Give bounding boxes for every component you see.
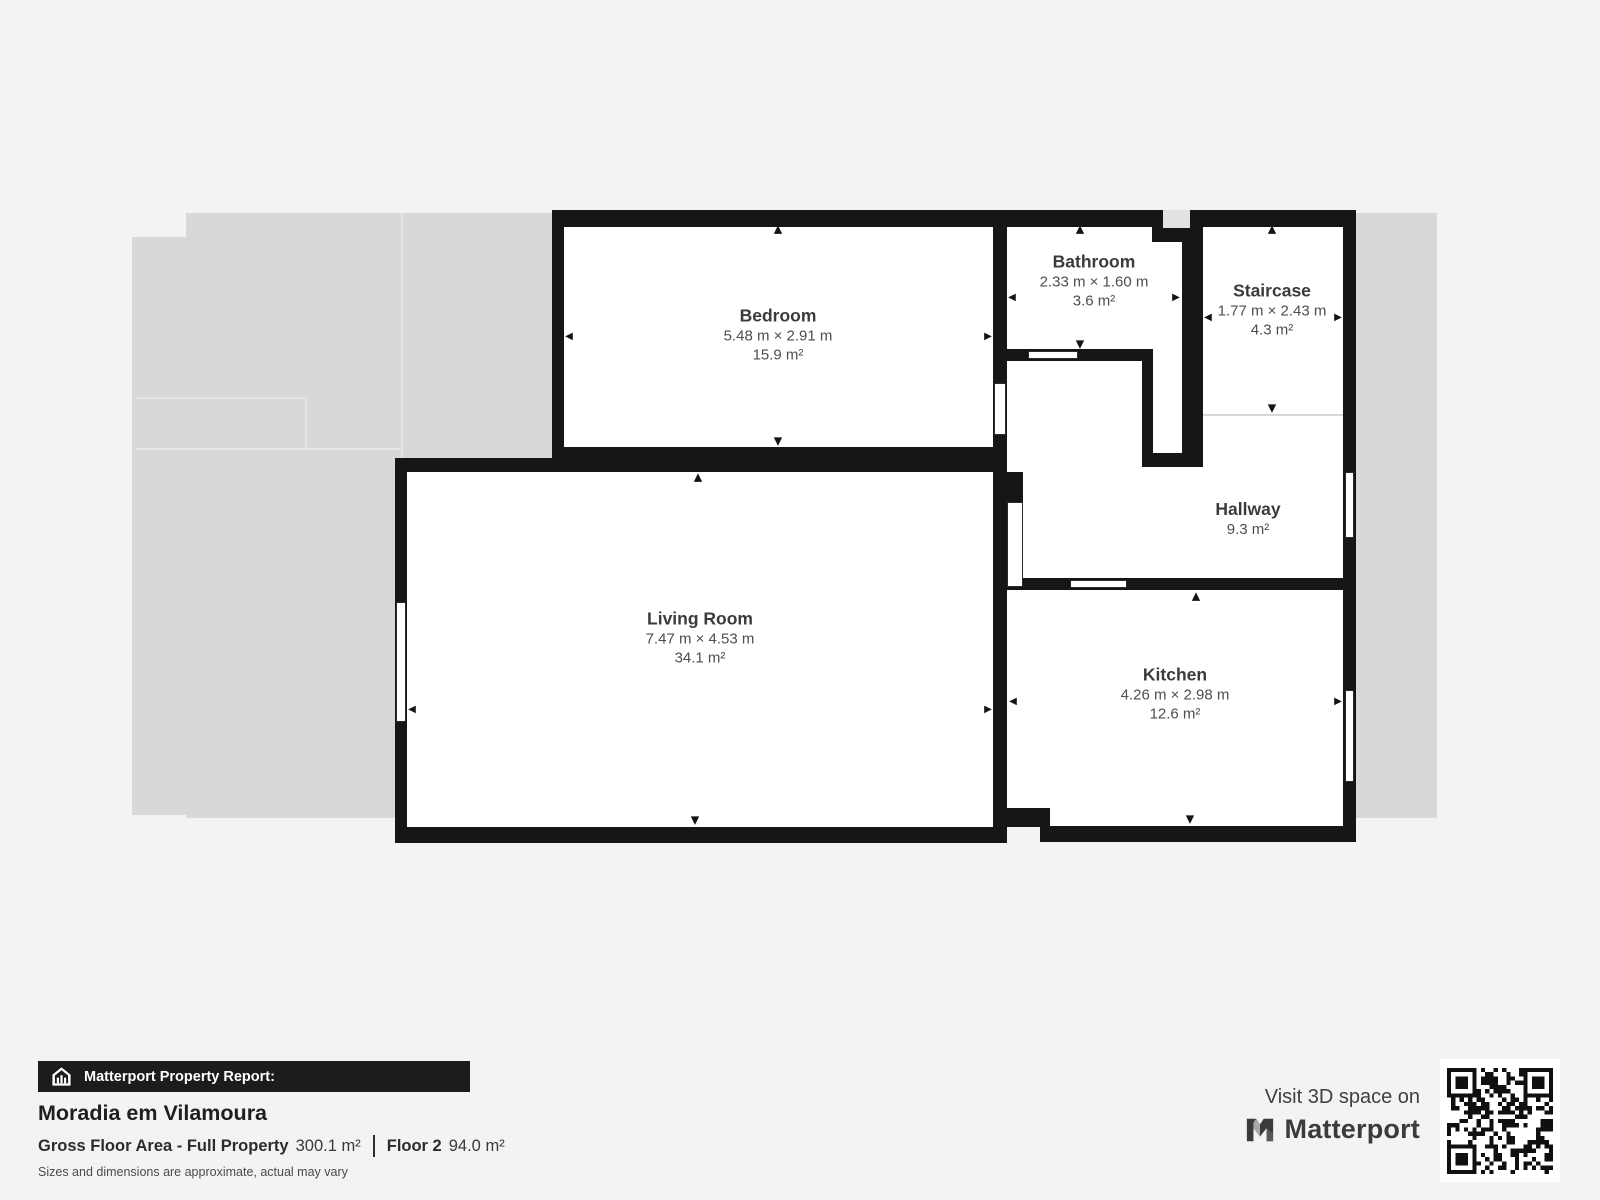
room-area: 3.6 m² — [1040, 292, 1149, 311]
wall-living-bottom — [395, 827, 1007, 843]
dimension-arrow-icon — [984, 703, 992, 715]
room-area: 12.6 m² — [1121, 705, 1230, 724]
wall-living-top — [395, 458, 565, 472]
info-divider — [373, 1135, 375, 1157]
room-dimensions: 1.77 m × 2.43 m — [1218, 302, 1327, 321]
dimension-arrow-icon — [694, 472, 702, 483]
silhouette-seam — [305, 397, 307, 449]
wall-hall-door-block — [993, 472, 1023, 502]
wall-bedroom-bottom — [552, 447, 1007, 472]
property-name: Moradia em Vilamoura — [38, 1101, 267, 1126]
door-bathroom — [1028, 351, 1078, 359]
gross-floor-area-value: 300.1 m² — [296, 1137, 361, 1156]
dimension-arrow-icon — [1334, 695, 1342, 707]
room-label-staircase: Staircase 1.77 m × 2.43 m 4.3 m² — [1218, 281, 1327, 340]
room-area: 4.3 m² — [1218, 321, 1327, 340]
wall-bottom-step — [993, 808, 1050, 827]
silhouette-seam — [136, 448, 402, 450]
dimension-arrow-icon — [1268, 224, 1276, 235]
dimension-arrow-icon — [1008, 291, 1016, 303]
room-label-bathroom: Bathroom 2.33 m × 1.60 m 3.6 m² — [1040, 252, 1149, 311]
promo-block: Visit 3D space on Matterport — [1245, 1086, 1421, 1145]
dimension-arrow-icon — [1172, 291, 1180, 303]
door-living-hallway — [1007, 502, 1023, 587]
room-name: Bathroom — [1040, 252, 1149, 273]
report-banner: Matterport Property Report: — [38, 1061, 470, 1092]
wall-kitchen-bottom — [1040, 826, 1356, 842]
matterport-floorplan-page: { "floorplan": { "rooms": [ {"id":"bedro… — [0, 0, 1600, 1200]
window-hallway-right — [1345, 472, 1354, 538]
room-name: Hallway — [1215, 499, 1280, 520]
window-living-left — [396, 602, 406, 722]
dimension-arrow-icon — [774, 436, 782, 447]
area-info-line: Gross Floor Area - Full Property 300.1 m… — [38, 1135, 505, 1157]
brand-row: Matterport — [1245, 1114, 1421, 1145]
room-dimensions: 4.26 m × 2.98 m — [1121, 686, 1230, 705]
room-name: Bedroom — [724, 306, 833, 327]
room-name: Kitchen — [1121, 665, 1230, 686]
dimension-arrow-icon — [408, 703, 416, 715]
wall-kitchen-top — [1007, 578, 1356, 590]
room-dimensions: 2.33 m × 1.60 m — [1040, 273, 1149, 292]
property-silhouette-left — [132, 237, 186, 815]
room-area: 9.3 m² — [1215, 520, 1280, 539]
window-kitchen-right — [1345, 690, 1354, 782]
floor-label: Floor 2 — [387, 1137, 442, 1156]
door-bedroom-hallway — [994, 383, 1006, 435]
dimension-arrow-icon — [1268, 403, 1276, 414]
disclaimer-text: Sizes and dimensions are approximate, ac… — [38, 1165, 348, 1179]
room-label-kitchen: Kitchen 4.26 m × 2.98 m 12.6 m² — [1121, 665, 1230, 724]
dimension-arrow-icon — [1204, 311, 1212, 323]
matterport-wordmark: Matterport — [1285, 1114, 1421, 1145]
room-dimensions: 7.47 m × 4.53 m — [646, 630, 755, 649]
silhouette-seam — [401, 213, 403, 458]
top-wall-notch — [1163, 210, 1190, 228]
room-label-living-room: Living Room 7.47 m × 4.53 m 34.1 m² — [646, 609, 755, 668]
gross-floor-area-label: Gross Floor Area - Full Property — [38, 1137, 289, 1156]
dimension-arrow-icon — [984, 330, 992, 342]
dimension-arrow-icon — [1076, 224, 1084, 235]
door-kitchen — [1070, 580, 1127, 588]
dimension-arrow-icon — [1186, 814, 1194, 825]
house-report-icon — [51, 1066, 72, 1087]
wall-closet-left — [1142, 349, 1153, 467]
room-area: 34.1 m² — [646, 649, 755, 668]
wall-bedroom-left — [552, 210, 564, 472]
wall-staircase-left — [1182, 210, 1203, 467]
dimension-arrow-icon — [691, 815, 699, 826]
room-name: Living Room — [646, 609, 755, 630]
room-label-hallway: Hallway 9.3 m² — [1215, 499, 1280, 539]
dimension-arrow-icon — [774, 224, 782, 235]
visit-3d-text: Visit 3D space on — [1245, 1086, 1421, 1109]
dimension-arrow-icon — [1076, 339, 1084, 350]
matterport-logo-icon — [1245, 1115, 1275, 1145]
report-banner-title: Matterport Property Report: — [84, 1069, 275, 1085]
room-name: Staircase — [1218, 281, 1327, 302]
dimension-arrow-icon — [1334, 311, 1342, 323]
wall-top — [552, 210, 1356, 227]
dimension-arrow-icon — [1192, 591, 1200, 602]
room-label-bedroom: Bedroom 5.48 m × 2.91 m 15.9 m² — [724, 306, 833, 365]
qr-code — [1440, 1059, 1560, 1182]
wall-notch-step — [1152, 227, 1192, 242]
dimension-arrow-icon — [565, 330, 573, 342]
wall-spine — [993, 210, 1007, 843]
silhouette-seam — [136, 397, 306, 399]
dimension-arrow-icon — [1009, 695, 1017, 707]
floor-area-value: 94.0 m² — [449, 1137, 505, 1156]
room-area: 15.9 m² — [724, 346, 833, 365]
room-dimensions: 5.48 m × 2.91 m — [724, 327, 833, 346]
